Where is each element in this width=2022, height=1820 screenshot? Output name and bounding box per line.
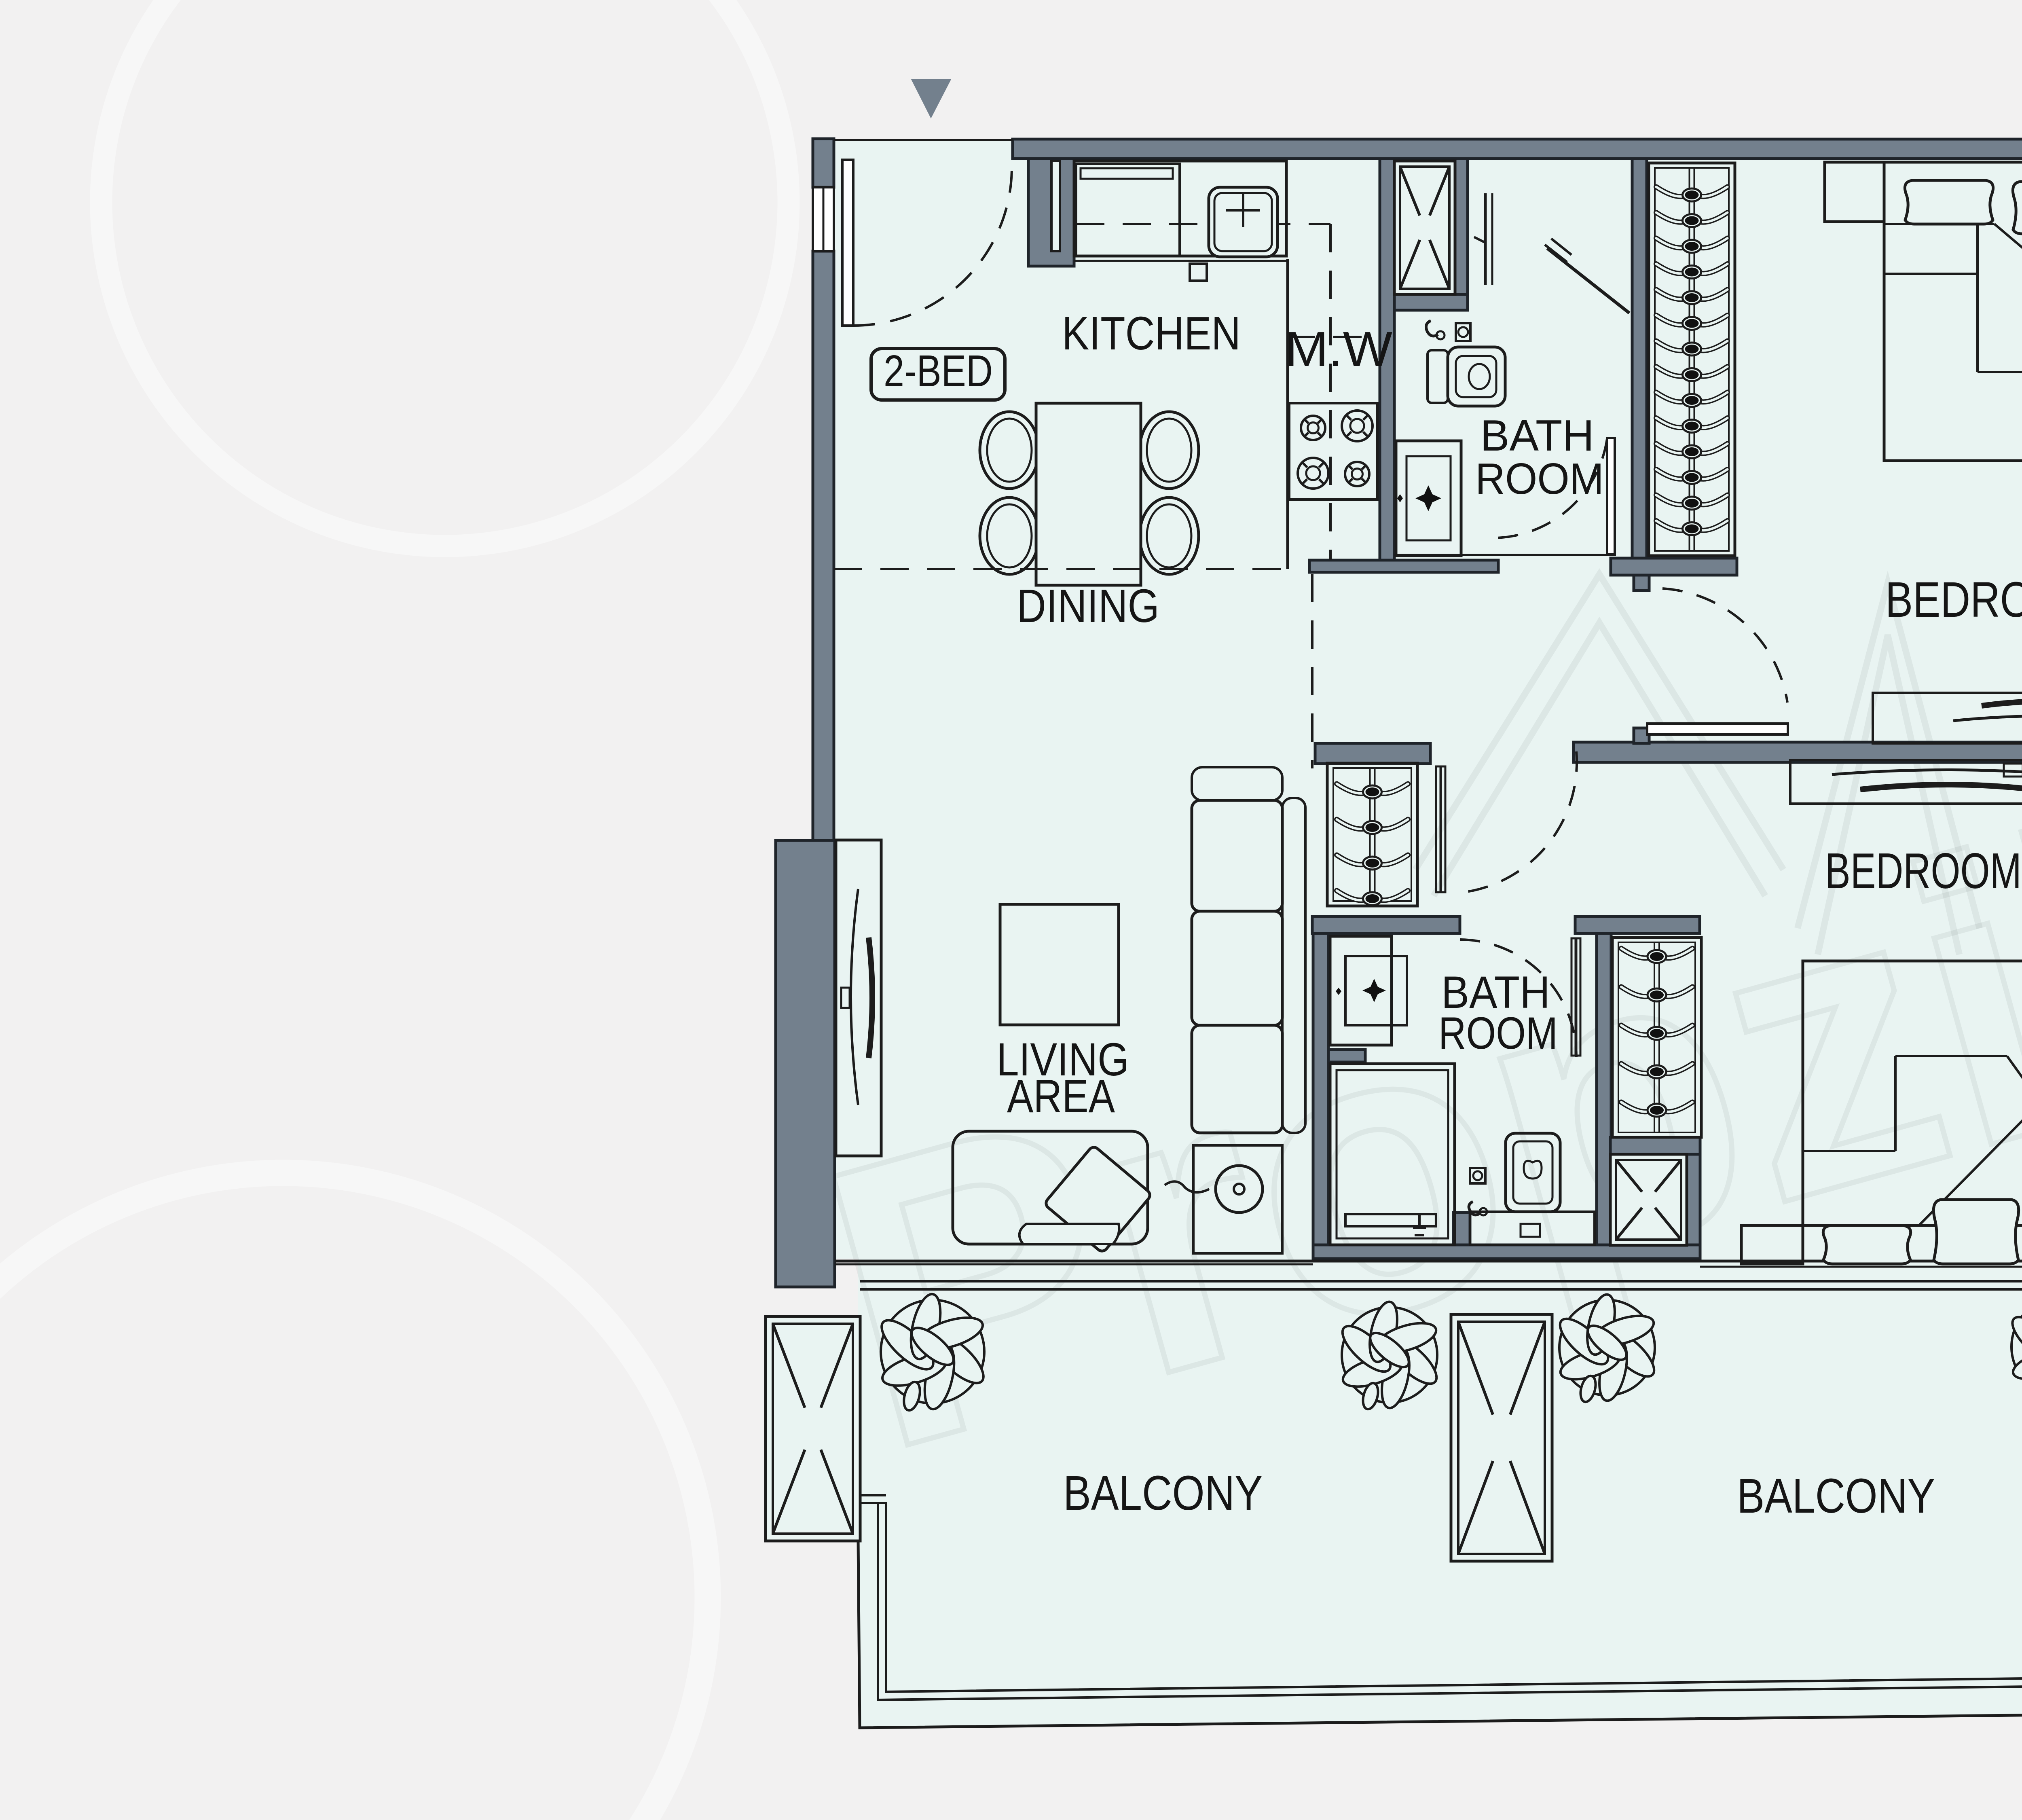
svg-text:BALCONY: BALCONY xyxy=(1063,1465,1263,1520)
svg-text:DINING: DINING xyxy=(1017,580,1159,632)
svg-text:BEDROOM: BEDROOM xyxy=(1825,843,2022,899)
svg-text:AREA: AREA xyxy=(1007,1071,1115,1122)
svg-text:ROOM: ROOM xyxy=(1438,1008,1558,1058)
svg-text:BALCONY: BALCONY xyxy=(1737,1468,1935,1523)
svg-text:KITCHEN: KITCHEN xyxy=(1062,307,1241,360)
svg-text:2-BED: 2-BED xyxy=(884,346,993,396)
svg-text:BATH: BATH xyxy=(1480,411,1594,460)
svg-text:ROOM: ROOM xyxy=(1475,454,1604,504)
svg-text:M.W: M.W xyxy=(1285,322,1392,377)
svg-text:BEDROOM: BEDROOM xyxy=(1885,572,2022,628)
